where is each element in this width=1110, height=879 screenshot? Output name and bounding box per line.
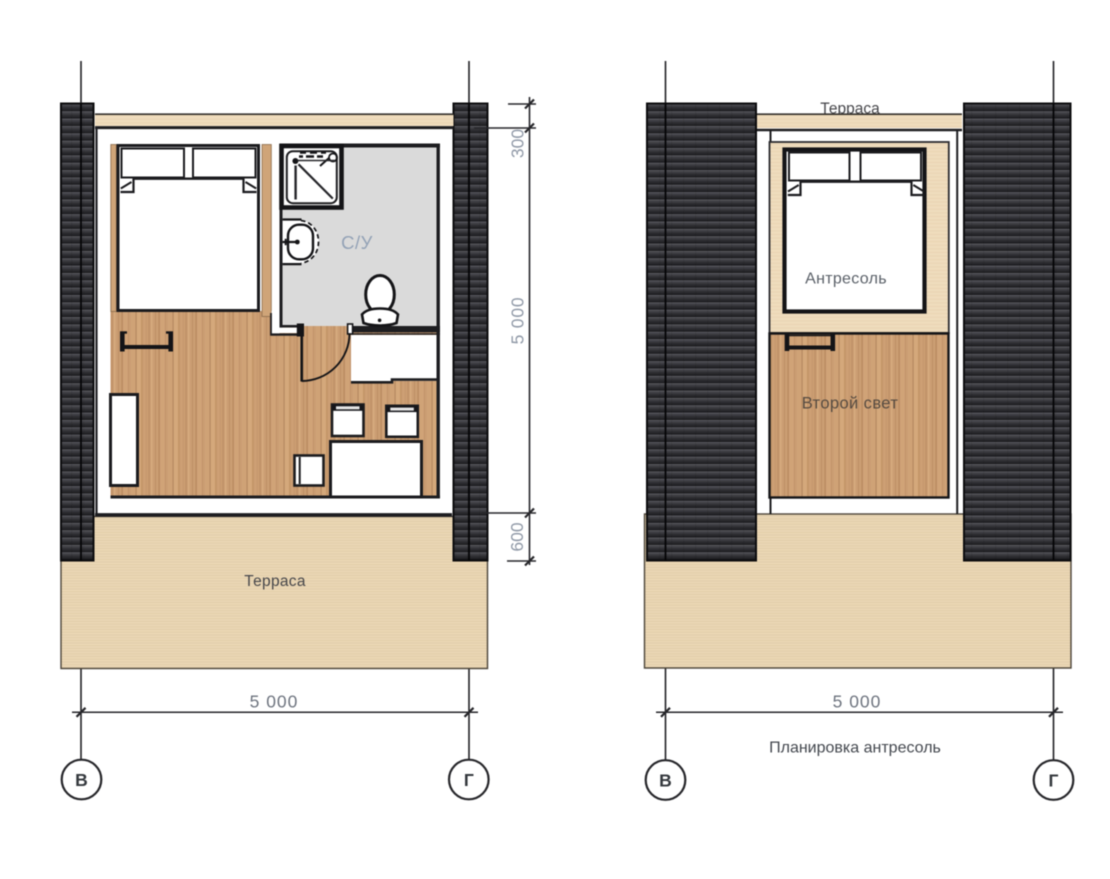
svg-text:В: В xyxy=(659,771,672,791)
svg-text:600: 600 xyxy=(507,522,527,551)
svg-text:Г: Г xyxy=(464,770,474,790)
svg-text:Планировка антресоль: Планировка антресоль xyxy=(769,740,941,757)
svg-text:С/У: С/У xyxy=(341,232,373,253)
svg-text:5 000: 5 000 xyxy=(833,692,882,712)
svg-text:Антресоль: Антресоль xyxy=(805,271,887,288)
svg-text:Второй свет: Второй свет xyxy=(802,395,899,413)
svg-text:В: В xyxy=(75,770,88,790)
svg-text:5 000: 5 000 xyxy=(508,297,528,345)
svg-text:Терраса: Терраса xyxy=(244,573,306,590)
svg-text:300: 300 xyxy=(508,129,528,158)
svg-text:Г: Г xyxy=(1049,771,1059,791)
svg-text:5 000: 5 000 xyxy=(250,692,299,712)
